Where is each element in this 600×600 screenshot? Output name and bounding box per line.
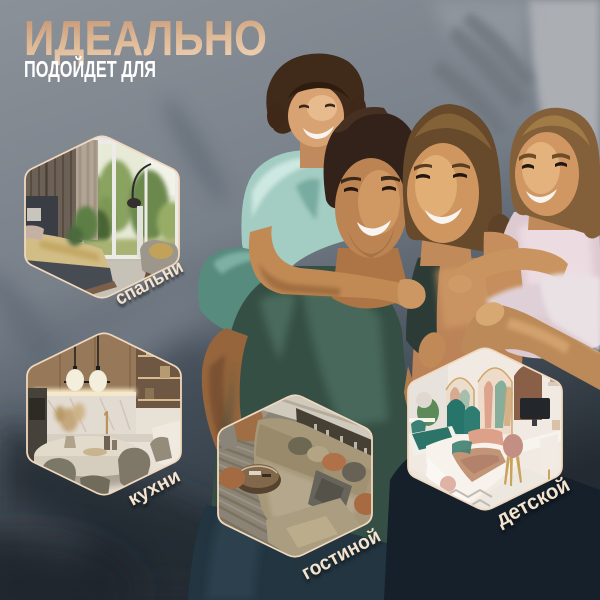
- svg-text:ПОДОЙДЕТ ДЛЯ: ПОДОЙДЕТ ДЛЯ: [24, 55, 156, 82]
